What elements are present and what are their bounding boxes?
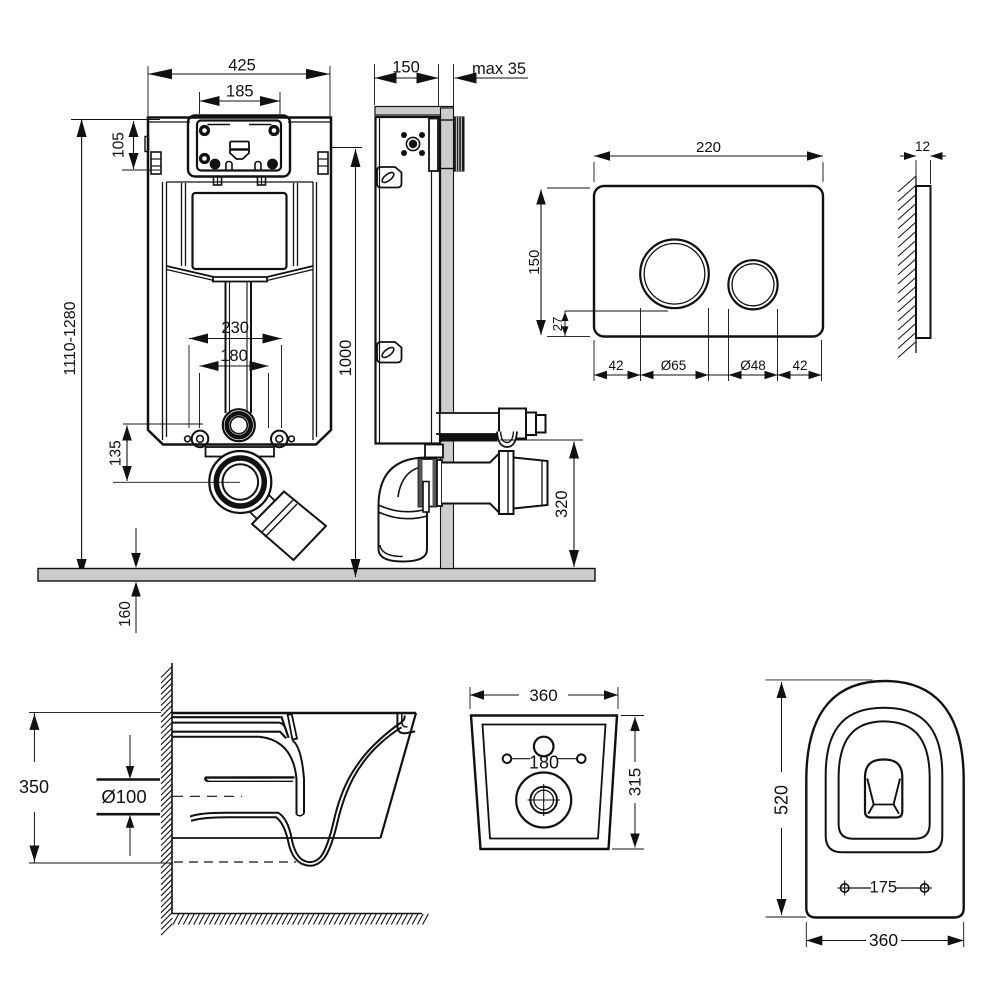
svg-text:185: 185 [226, 83, 254, 101]
svg-text:425: 425 [228, 57, 256, 75]
svg-text:180: 180 [220, 347, 248, 365]
svg-text:180: 180 [529, 753, 559, 773]
svg-text:520: 520 [772, 785, 792, 815]
svg-text:1110-1280: 1110-1280 [62, 301, 79, 375]
svg-text:12: 12 [915, 139, 930, 154]
svg-text:160: 160 [117, 601, 134, 627]
svg-text:320: 320 [553, 490, 571, 518]
svg-text:150: 150 [392, 59, 420, 77]
svg-text:max 35: max 35 [472, 60, 526, 78]
svg-text:135: 135 [108, 440, 125, 466]
svg-text:350: 350 [19, 777, 49, 797]
svg-text:360: 360 [869, 930, 898, 950]
svg-text:Ø65: Ø65 [661, 358, 687, 373]
svg-text:27: 27 [550, 317, 565, 331]
svg-text:220: 220 [696, 139, 721, 156]
svg-text:1000: 1000 [337, 340, 355, 377]
svg-text:42: 42 [792, 358, 807, 373]
svg-text:230: 230 [221, 319, 249, 337]
svg-text:Ø100: Ø100 [101, 786, 146, 807]
svg-text:105: 105 [111, 132, 128, 158]
svg-text:360: 360 [529, 686, 557, 705]
svg-text:42: 42 [608, 358, 623, 373]
svg-text:150: 150 [526, 250, 543, 275]
svg-text:315: 315 [625, 768, 644, 796]
svg-text:175: 175 [870, 879, 898, 897]
svg-text:Ø48: Ø48 [740, 358, 766, 373]
